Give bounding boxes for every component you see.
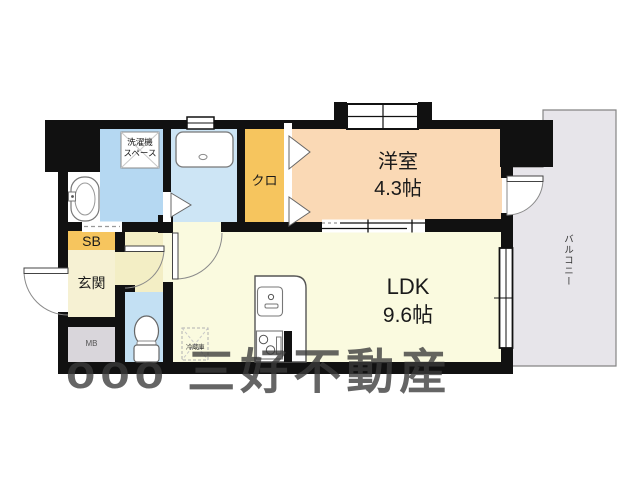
sliding-door-track: [322, 220, 425, 233]
ldk-door-swing: [176, 233, 222, 279]
washbasin-bowl: [75, 183, 95, 215]
ldk-size-label: 9.6帖: [360, 299, 456, 329]
washbasin-tap-dot: [71, 195, 74, 198]
kitchen-sink: [258, 287, 283, 316]
bathtub: [176, 132, 233, 167]
ldk-door-leaf: [173, 233, 179, 279]
entrance-label: 玄関: [68, 273, 115, 293]
bedroom-label: 洋室: [350, 145, 446, 174]
floor-plan: 洗濯機スペース クロ 洋室 4.3帖 LDK 9.6帖 SB 玄関 MB 冷蔵庫…: [0, 0, 640, 480]
hall-door-swing: [125, 249, 164, 288]
laundry-space-label: 洗濯機スペース: [121, 137, 159, 159]
bathroom-folding-door-icon: [171, 193, 191, 217]
ldk-label: LDK: [360, 274, 456, 300]
entrance-door-swing: [24, 271, 68, 315]
bathtub-drain: [199, 154, 207, 159]
watermark: ooo 三好不動産: [66, 332, 452, 402]
balcony-label: バルコニー: [560, 228, 574, 292]
closet-label: クロ: [245, 170, 284, 189]
shoe-box-label: SB: [68, 233, 115, 249]
kitchen-faucet-lever: [265, 304, 278, 308]
kitchen-faucet: [268, 294, 273, 299]
balcony-door-leaf: [507, 176, 543, 182]
balcony-door-swing: [507, 179, 543, 215]
closet-folding-door-icon-1: [289, 136, 310, 169]
hall-door-leaf: [125, 246, 164, 252]
entrance-door-leaf: [24, 268, 68, 274]
bathroom-door-gap: [163, 192, 171, 222]
closet-folding-door-icon-2: [289, 197, 310, 226]
bedroom-size-label: 4.3帖: [350, 172, 446, 201]
